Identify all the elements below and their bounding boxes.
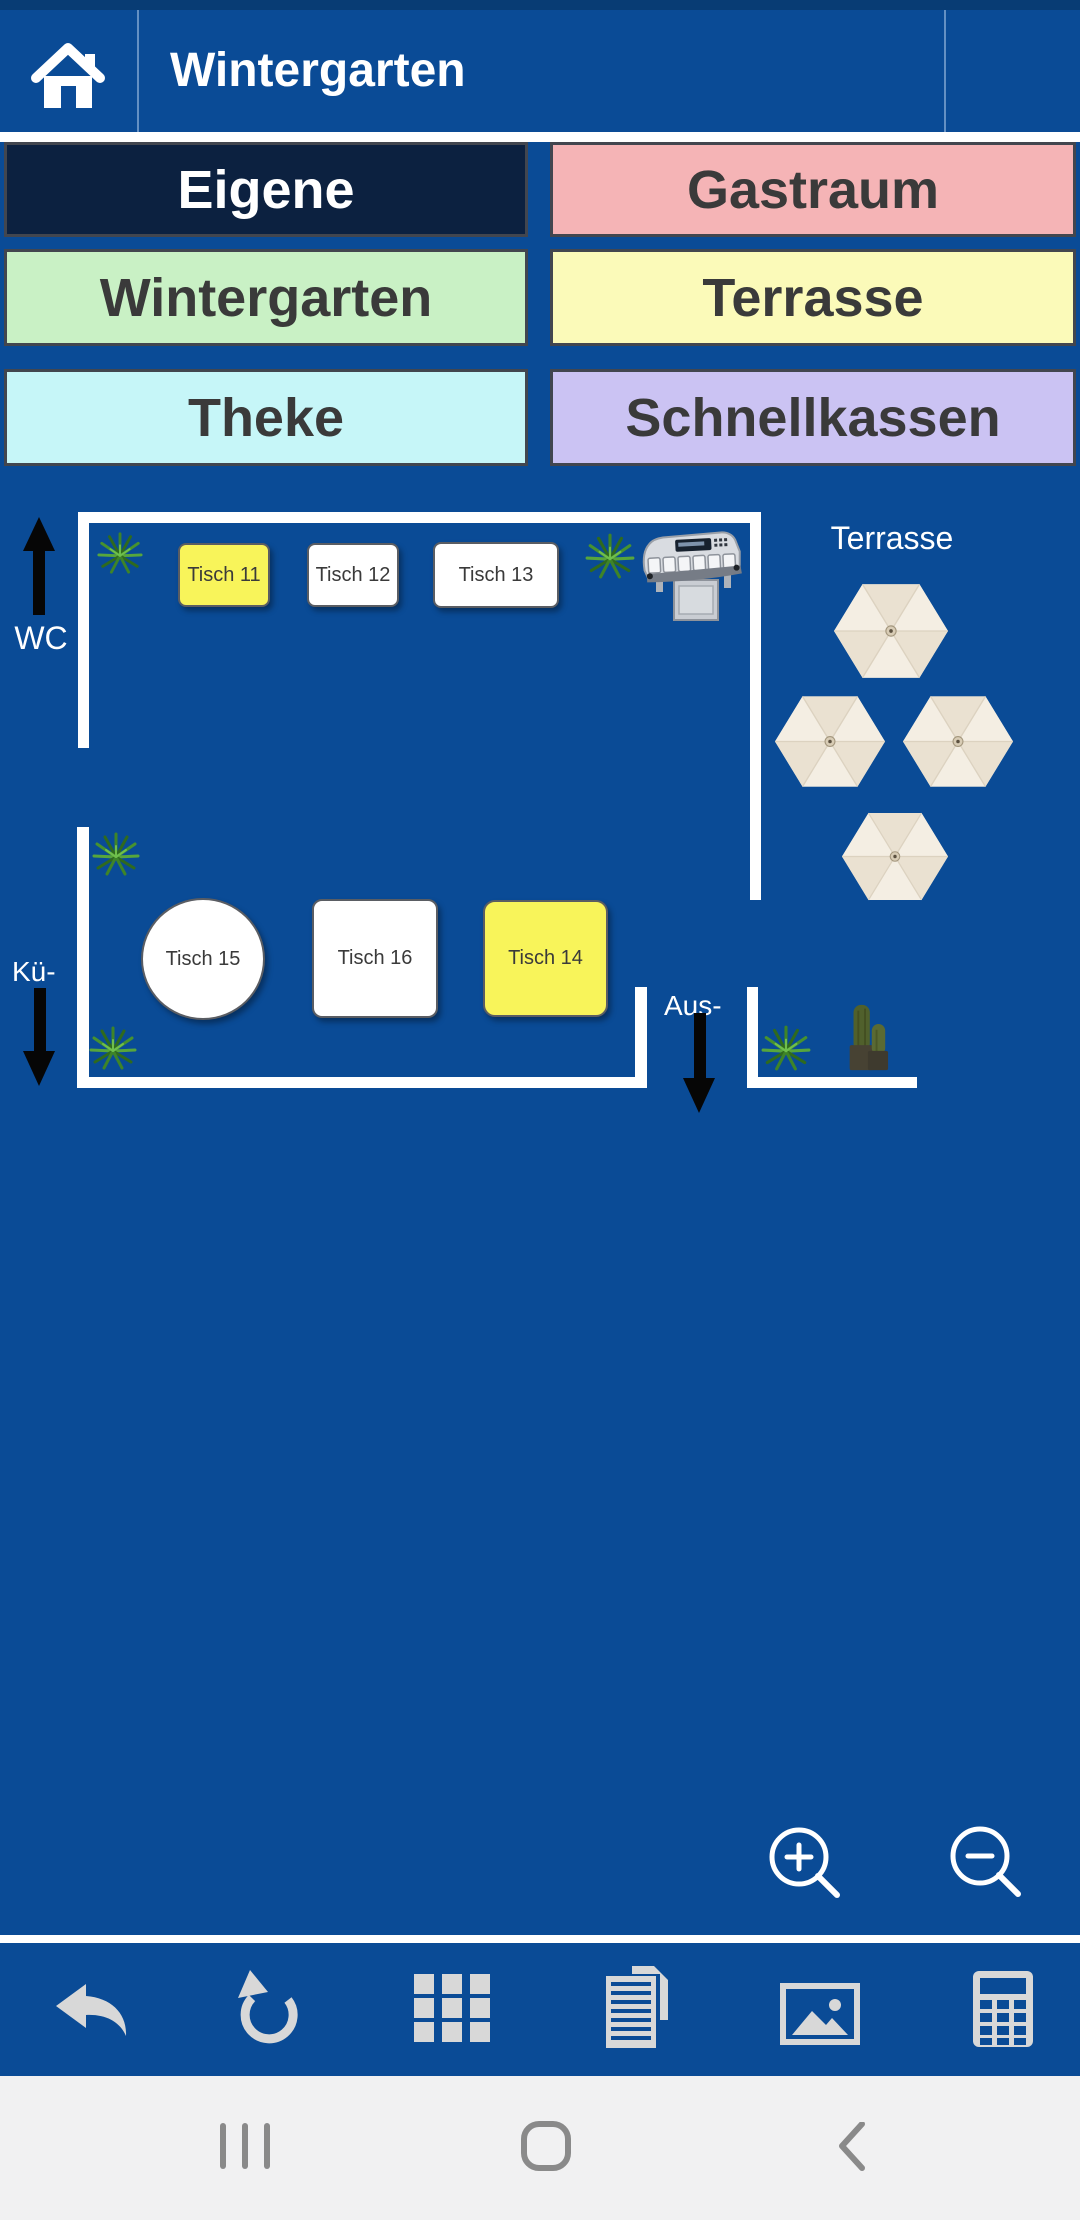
home-nav-icon[interactable] bbox=[520, 2120, 572, 2172]
tab-schnellkassen[interactable]: Schnellkassen bbox=[550, 369, 1076, 466]
tab-theke[interactable]: Theke bbox=[4, 369, 528, 466]
parasol-icon bbox=[842, 810, 948, 903]
app-header bbox=[0, 10, 1080, 132]
header-divider-left bbox=[137, 10, 139, 132]
wall-left-upper bbox=[78, 512, 89, 748]
back-nav-icon[interactable] bbox=[838, 2122, 868, 2172]
tab-terrasse[interactable]: Terrasse bbox=[550, 249, 1076, 346]
table-tisch-14[interactable]: Tisch 14 bbox=[483, 900, 608, 1017]
android-nav-bar bbox=[0, 2076, 1080, 2220]
floor-plan-canvas[interactable]: WC Kü- Aus- Terrasse Tisch 11 Tisch 12 T… bbox=[0, 470, 1080, 1935]
bottom-toolbar bbox=[0, 1943, 1080, 2076]
plant-icon bbox=[96, 526, 144, 578]
exit-label: Aus- bbox=[664, 990, 722, 1022]
kitchen-arrow-shaft bbox=[34, 988, 46, 1052]
document-icon[interactable] bbox=[602, 1966, 672, 2048]
tab-eigene[interactable]: Eigene bbox=[4, 142, 528, 237]
wall-bottom-lower bbox=[77, 1077, 647, 1088]
parasol-icon bbox=[775, 694, 885, 789]
status-bar-strip bbox=[0, 0, 1080, 10]
rotate-icon[interactable] bbox=[236, 1968, 302, 2048]
tab-wintergarten[interactable]: Wintergarten bbox=[4, 249, 528, 346]
plant-icon bbox=[91, 826, 141, 880]
wall-right-lower bbox=[635, 987, 647, 1088]
home-button[interactable] bbox=[0, 10, 137, 132]
coin-machine-icon bbox=[636, 528, 748, 624]
wall-top bbox=[80, 512, 761, 523]
grid-icon[interactable] bbox=[414, 1974, 490, 2042]
page-title: Wintergarten bbox=[170, 10, 466, 132]
region-label: Terrasse bbox=[830, 520, 954, 557]
header-separator bbox=[0, 132, 1080, 142]
parasol-icon bbox=[834, 582, 948, 680]
exit-arrow-shaft bbox=[694, 1013, 706, 1079]
header-divider-right bbox=[944, 10, 946, 132]
table-tisch-13[interactable]: Tisch 13 bbox=[433, 542, 559, 608]
plant-icon bbox=[86, 1022, 140, 1072]
wall-exit-bottom bbox=[747, 1077, 917, 1088]
app-screen: Wintergarten Eigene Gastraum Wintergarte… bbox=[0, 0, 1080, 2220]
wc-arrow-shaft bbox=[33, 549, 45, 615]
undo-arrow-icon[interactable] bbox=[50, 1980, 134, 2036]
menu-button[interactable] bbox=[970, 10, 1080, 132]
table-tisch-15[interactable]: Tisch 15 bbox=[141, 898, 265, 1020]
recents-icon[interactable] bbox=[220, 2123, 272, 2171]
parasol-icon bbox=[903, 694, 1013, 789]
wc-label: WC bbox=[10, 620, 72, 657]
zoom-in-button[interactable] bbox=[766, 1824, 844, 1902]
table-tisch-12[interactable]: Tisch 12 bbox=[307, 543, 399, 607]
wall-exit-vertical bbox=[747, 987, 758, 1088]
zoom-out-button[interactable] bbox=[947, 1823, 1025, 1901]
cactus-icon bbox=[842, 1000, 890, 1074]
kitchen-arrow-icon bbox=[23, 1051, 55, 1086]
exit-arrow-icon bbox=[683, 1078, 715, 1113]
kitchen-label: Kü- bbox=[12, 956, 56, 988]
plant-icon bbox=[760, 1020, 812, 1074]
table-tisch-11[interactable]: Tisch 11 bbox=[178, 543, 270, 607]
calculator-icon[interactable] bbox=[972, 1970, 1034, 2048]
table-tisch-16[interactable]: Tisch 16 bbox=[312, 899, 438, 1018]
wall-right-upper bbox=[750, 512, 761, 900]
toolbar-divider bbox=[0, 1935, 1080, 1943]
plant-icon bbox=[584, 528, 636, 582]
tab-gastraum[interactable]: Gastraum bbox=[550, 142, 1076, 237]
image-icon[interactable] bbox=[780, 1983, 860, 2045]
wc-arrow-icon bbox=[23, 517, 55, 551]
home-icon bbox=[30, 42, 106, 112]
